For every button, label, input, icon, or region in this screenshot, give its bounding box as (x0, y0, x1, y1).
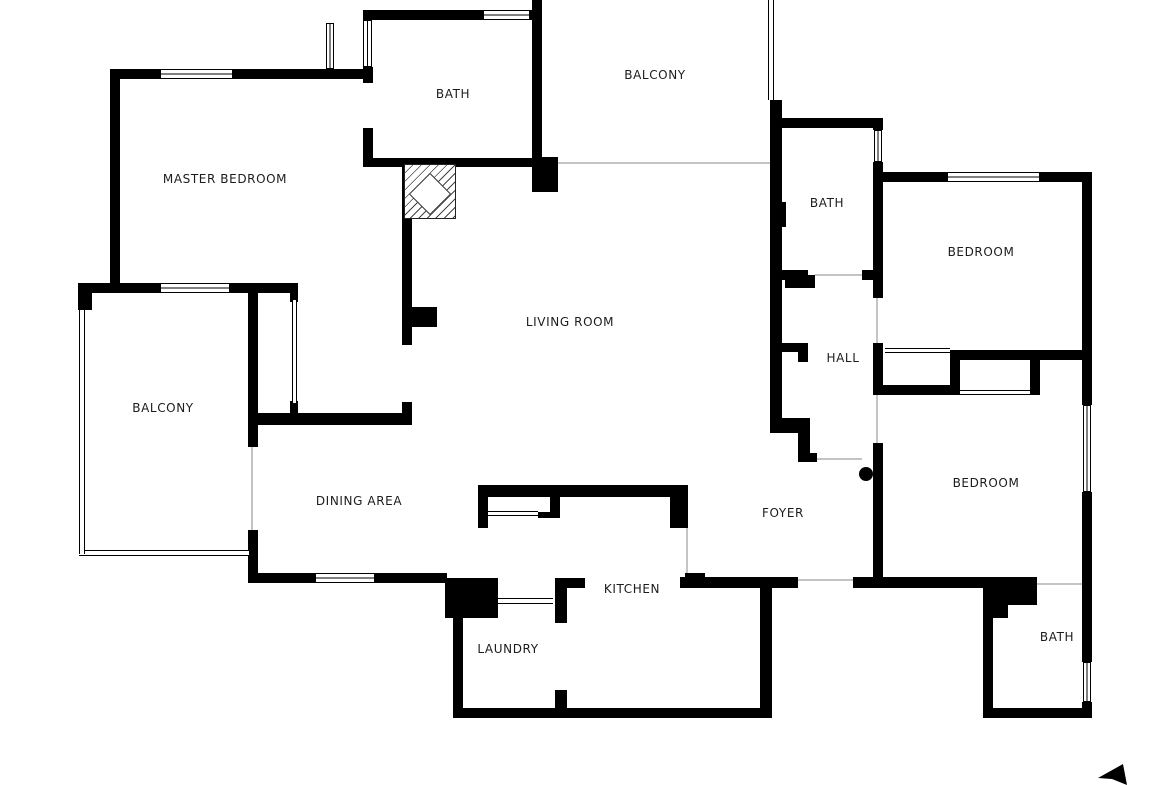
room-label-bath-hall: BATH (810, 196, 844, 210)
room-label-kitchen: KITCHEN (604, 582, 660, 596)
railing (498, 598, 553, 604)
wall (550, 485, 560, 518)
window (363, 20, 372, 67)
wall (402, 402, 412, 425)
railing (488, 511, 538, 516)
wall (770, 343, 808, 352)
railing (292, 300, 297, 403)
shower-hatch (404, 164, 456, 219)
wall (1082, 172, 1092, 405)
wall (532, 157, 558, 192)
room-label-bath-2: BATH (1040, 630, 1074, 644)
room-label-dining-area: DINING AREA (316, 494, 402, 508)
room-label-laundry: LAUNDRY (477, 642, 538, 656)
wall (983, 588, 1037, 605)
room-label-balcony-left: BALCONY (132, 401, 193, 415)
wall (760, 588, 772, 718)
wall (798, 352, 808, 362)
wall (983, 605, 1008, 618)
window (1083, 405, 1091, 492)
railing (885, 348, 950, 353)
door-opening (686, 528, 688, 573)
window (1083, 662, 1091, 702)
wall (1082, 492, 1092, 662)
wall (78, 283, 92, 310)
railing (768, 0, 774, 100)
wall (773, 118, 883, 128)
window (947, 172, 1040, 182)
wall (770, 100, 782, 433)
wall (555, 690, 567, 718)
wall (873, 443, 883, 588)
wall (478, 485, 488, 528)
wall (873, 118, 883, 130)
room-label-living-room: LIVING ROOM (526, 315, 614, 329)
wall (670, 485, 688, 528)
window (315, 573, 375, 583)
wall (862, 270, 883, 280)
wall (780, 202, 786, 227)
railing (960, 390, 1030, 395)
wall (770, 418, 810, 433)
window (160, 283, 230, 293)
door-dot (859, 467, 873, 481)
wall (110, 69, 120, 285)
wall (680, 577, 798, 588)
door-opening (558, 162, 770, 164)
wall (983, 618, 993, 718)
wall (110, 69, 373, 79)
room-label-bedroom-2: BEDROOM (953, 476, 1020, 490)
door-opening (876, 298, 878, 343)
wall (785, 275, 815, 288)
wall (532, 0, 542, 160)
wall (555, 578, 567, 623)
door-opening (817, 458, 862, 460)
wall (798, 453, 817, 462)
door-opening (251, 447, 253, 530)
room-label-bath-master: BATH (436, 87, 470, 101)
room-label-bedroom-1: BEDROOM (948, 245, 1015, 259)
room-label-hall: HALL (826, 351, 859, 365)
wall (950, 350, 1092, 360)
railing (79, 310, 85, 554)
wall (453, 708, 772, 718)
wall (478, 485, 688, 497)
wall (445, 578, 498, 618)
wall (873, 385, 960, 395)
shower-tray (409, 173, 451, 215)
north-arrow-icon (1094, 758, 1138, 785)
wall (538, 512, 550, 518)
wall (258, 413, 412, 425)
wall (453, 618, 463, 718)
door-opening (815, 274, 862, 276)
room-label-balcony-top: BALCONY (624, 68, 685, 82)
window (160, 69, 233, 79)
window (874, 130, 882, 162)
wall (983, 708, 1092, 718)
railing (79, 550, 249, 556)
door-opening (876, 395, 878, 443)
window (326, 23, 334, 69)
wall (363, 67, 373, 83)
wall (412, 307, 437, 327)
wall (248, 283, 258, 447)
door-opening (798, 579, 853, 581)
floor-plan: MASTER BEDROOMBATHBALCONYBATHBEDROOMLIVI… (0, 0, 1170, 785)
room-label-foyer: FOYER (762, 506, 804, 520)
window (483, 10, 530, 20)
door-opening (1037, 583, 1082, 585)
room-label-master-bedroom: MASTER BEDROOM (163, 172, 287, 186)
wall (1030, 360, 1040, 395)
